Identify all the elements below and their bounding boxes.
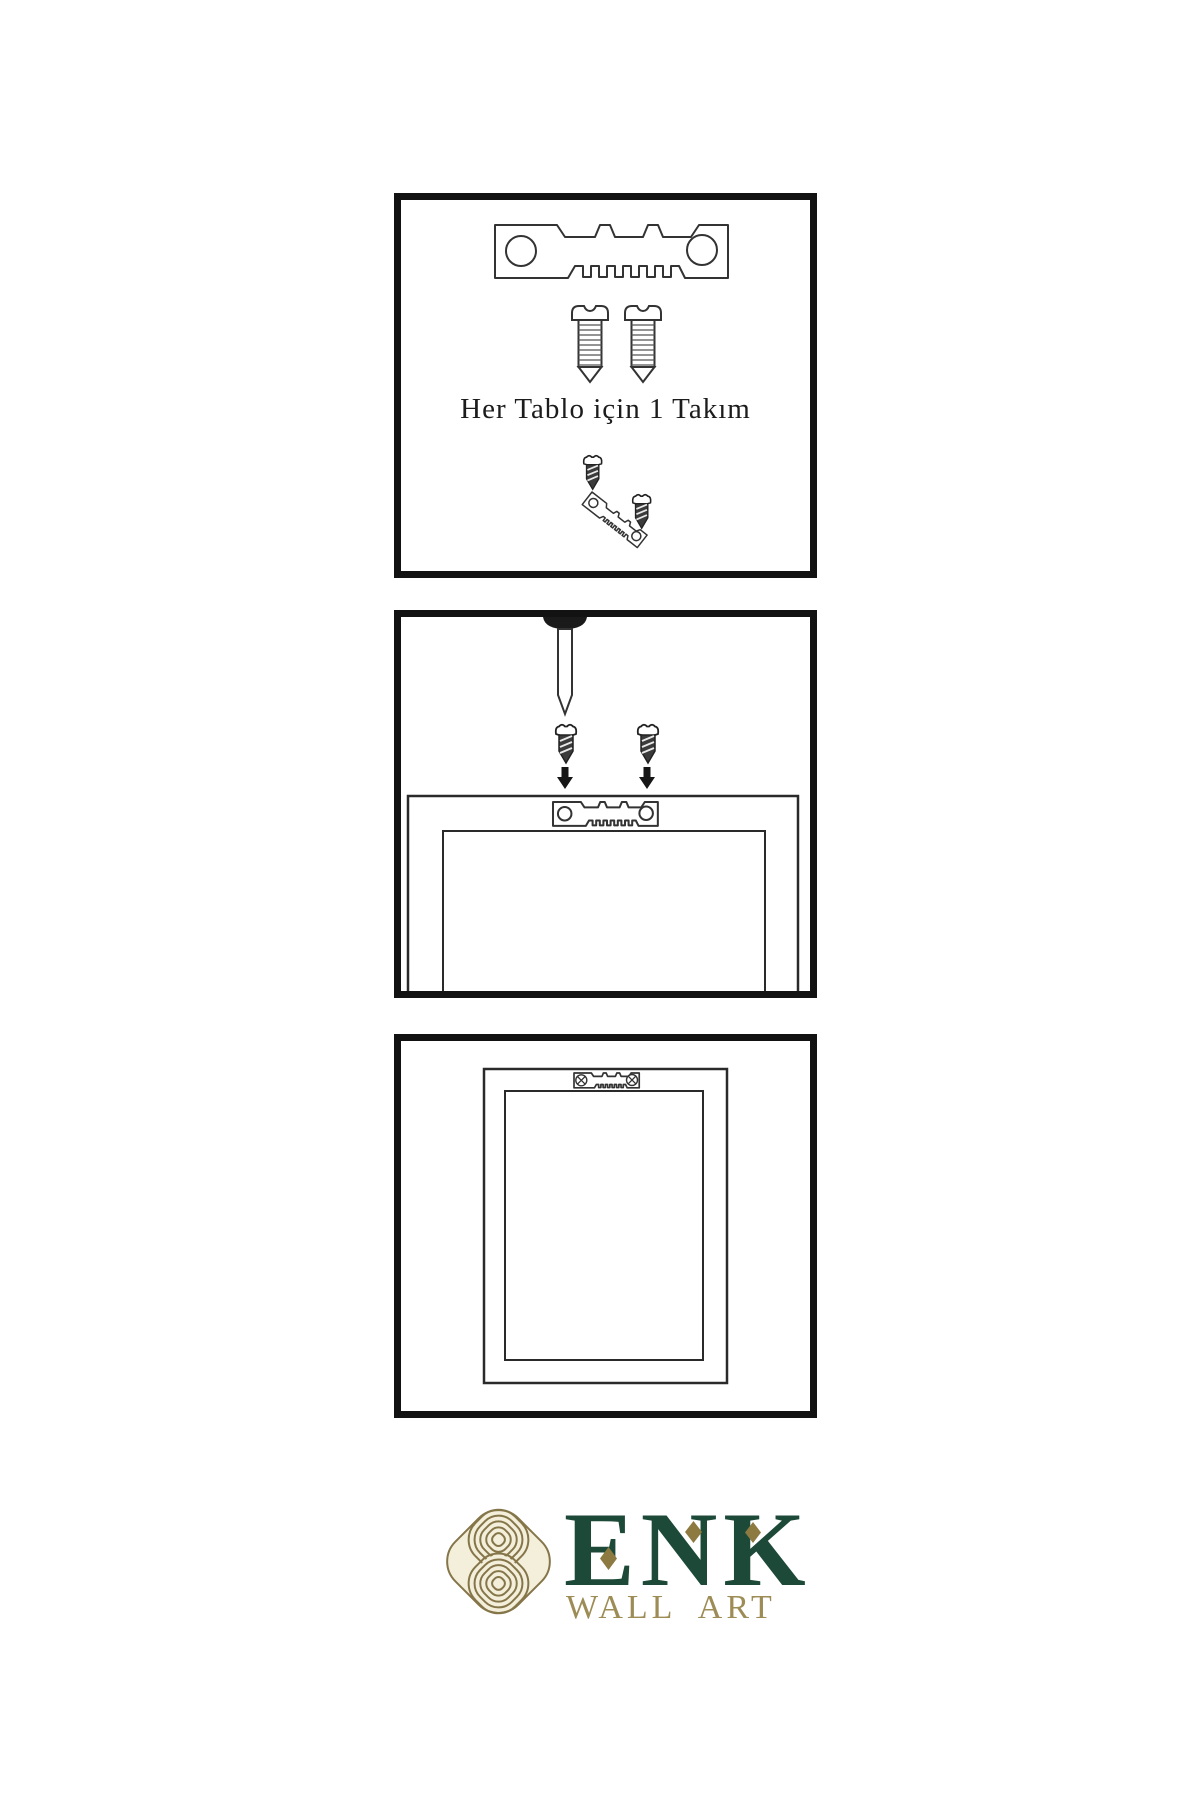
arrow-down-icon [639,767,655,789]
step-2-panel [394,610,817,998]
installation-illustration [401,617,810,991]
brand-logo: ENK WALL ART [437,1495,797,1645]
step-3-panel [394,1034,817,1418]
hardware-kit-illustration [401,200,810,571]
frame-inner-outline [443,831,765,991]
phillips-screw-head-icon [576,1075,587,1086]
kit-caption: Her Tablo için 1 Takım [401,393,810,426]
screw-icon [633,495,651,529]
nail-icon [558,629,572,714]
sawtooth-hanger-icon [495,225,728,278]
nail-head-icon [543,617,587,629]
arrow-down-icon [557,767,573,789]
screw-icon [625,306,661,382]
step-1-panel: Her Tablo için 1 Takım [394,193,817,578]
screw-icon [584,456,602,490]
brand-tagline: WALL ART [566,1589,776,1627]
screw-icon [556,725,576,763]
screw-icon [638,725,658,763]
brand-name: ENK [564,1497,812,1603]
screw-icon [572,306,608,382]
mounted-frame-illustration [401,1041,807,1411]
instruction-sheet: Her Tablo için 1 Takım [0,0,1200,1800]
phillips-screw-head-icon [627,1075,638,1086]
frame-inner-outline [505,1091,703,1360]
knot-logo-icon [437,1500,560,1623]
